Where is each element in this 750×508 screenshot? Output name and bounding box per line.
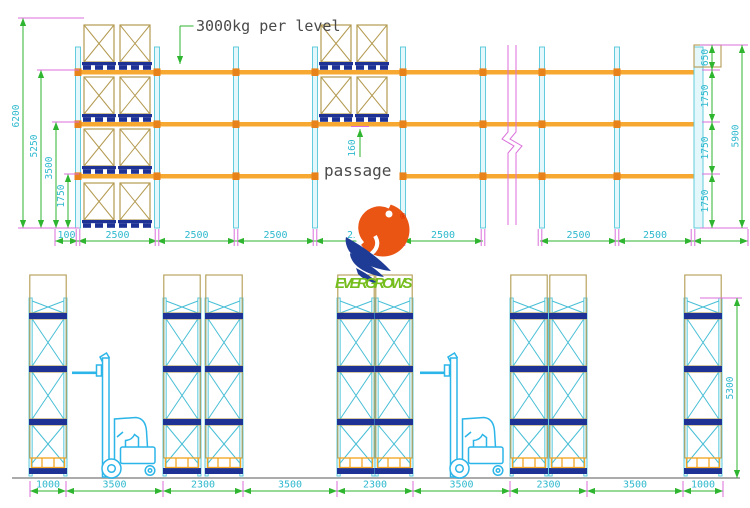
forklift-right <box>420 353 503 478</box>
pallet-load <box>82 25 116 70</box>
rack-row-tower <box>684 275 722 476</box>
passage-label: passage <box>324 161 391 180</box>
beam-connector <box>154 68 161 76</box>
evergrows-logo: ® EVERGROWS <box>335 204 413 293</box>
rack-row-tower <box>163 275 201 476</box>
pallet-load <box>355 25 389 70</box>
forklift-left <box>72 353 155 478</box>
dimension-label: 2500 <box>566 230 590 241</box>
beam-connector <box>614 172 621 180</box>
pallet-load <box>118 129 152 174</box>
dimension-label: 2500 <box>184 230 208 241</box>
beam-connector <box>480 68 487 76</box>
side-elevation-view: 1000350023003500230035002300350010005300 <box>12 275 742 497</box>
racking-drawing-canvas: 3000kg per level passage 160 62005250350… <box>0 0 750 508</box>
dimension-label: 2300 <box>536 480 560 491</box>
beam-connector <box>539 120 546 128</box>
pallet-load <box>82 183 116 228</box>
pallet-load <box>82 77 116 122</box>
rack-row-tower <box>29 275 67 476</box>
dimension-label: 3500 <box>449 480 473 491</box>
dimension-label: 2500 <box>105 230 129 241</box>
beam-connector <box>539 172 546 180</box>
beam-connector <box>233 172 240 180</box>
capacity-leader-line <box>180 26 194 64</box>
beam-connector <box>233 68 240 76</box>
dimension-label: 1000 <box>691 480 715 491</box>
beam-connector <box>154 172 161 180</box>
dimension-label: 1000 <box>36 480 60 491</box>
pallet-load <box>355 77 389 122</box>
beam-connector <box>480 172 487 180</box>
beam-connector <box>614 120 621 128</box>
capacity-label: 3000kg per level <box>196 17 341 35</box>
pallet-load <box>82 129 116 174</box>
dimension-label: 2300 <box>363 480 387 491</box>
beam-connector <box>233 120 240 128</box>
pallet-load <box>118 25 152 70</box>
rack-row-tower <box>375 275 413 476</box>
rack-row-tower <box>337 275 375 476</box>
dimension-label: 2500 <box>431 230 455 241</box>
registered-mark: ® <box>400 212 406 221</box>
dimension-label: 2300 <box>191 480 215 491</box>
rack-rows-side-view <box>29 275 722 476</box>
rack-row-tower <box>205 275 243 476</box>
dimension-label: 1750 <box>700 136 711 159</box>
beam-connector <box>480 120 487 128</box>
beam-connector <box>614 68 621 76</box>
dimension-label: 3500 <box>44 156 55 179</box>
pallet-load <box>118 183 152 228</box>
dimension-label: 5900 <box>731 124 742 147</box>
beam-height-dim-label: 160 <box>347 139 358 156</box>
dimension-label: 1750 <box>56 184 67 207</box>
dimension-label: 100 <box>57 230 75 241</box>
beam-height-dimension: 160 <box>347 127 369 158</box>
pallet-load <box>118 77 152 122</box>
dimension-label: 1750 <box>700 189 711 212</box>
pallet-load <box>319 77 353 122</box>
dimension-label: 3500 <box>278 480 302 491</box>
beam-connector <box>312 172 319 180</box>
dimension-label: 2500 <box>263 230 287 241</box>
logo-brand-text: EVERGROWS <box>335 275 413 292</box>
dimension-label: 6200 <box>11 104 22 127</box>
dimension-label: 3500 <box>623 480 647 491</box>
dimension-label: 5300 <box>725 376 736 399</box>
racking-drawing: 3000kg per level passage 160 62005250350… <box>0 0 750 508</box>
dimension-label: 2500 <box>643 230 667 241</box>
dimension-label: 5250 <box>29 134 40 157</box>
beam-connector <box>312 68 319 76</box>
rack-row-tower <box>510 275 548 476</box>
dimension-label: 1750 <box>700 84 711 107</box>
beam-connector <box>312 120 319 128</box>
beam-connector <box>400 68 407 76</box>
dimension-label: 650 <box>700 49 711 66</box>
beam-connector <box>400 120 407 128</box>
rack-row-tower <box>549 275 587 476</box>
beam-connector <box>154 120 161 128</box>
beam-connector <box>539 68 546 76</box>
dimension-label: 3500 <box>102 480 126 491</box>
beam-connector <box>400 172 407 180</box>
